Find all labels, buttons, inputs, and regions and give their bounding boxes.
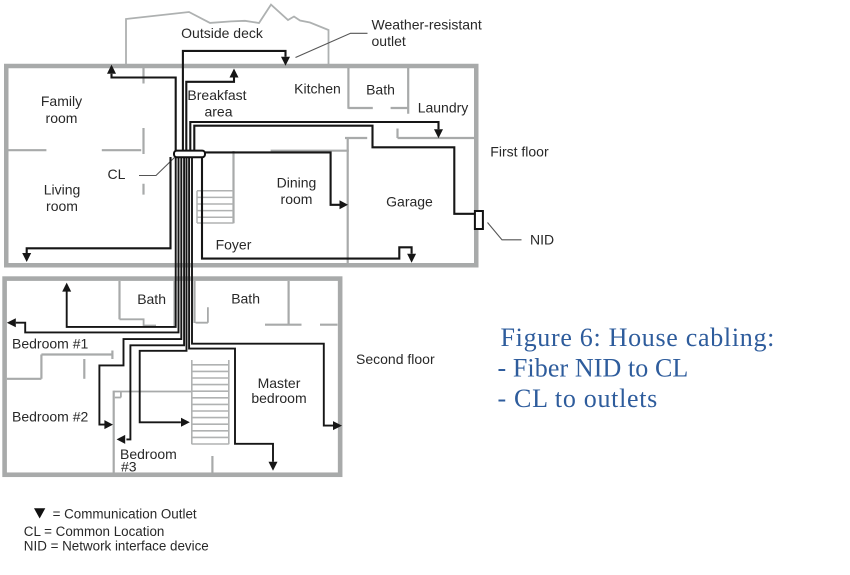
svg-text:CL: CL: [108, 166, 126, 182]
svg-text:room: room: [46, 110, 78, 126]
svg-text:Weather-resistant: Weather-resistant: [372, 17, 482, 33]
svg-text:Family: Family: [41, 93, 82, 109]
svg-text:Garage: Garage: [386, 194, 433, 210]
svg-text:Bath: Bath: [366, 82, 395, 98]
svg-text:NID = Network interface device: NID = Network interface device: [24, 539, 209, 554]
svg-text:NID: NID: [530, 231, 554, 247]
svg-text:Bedroom #2: Bedroom #2: [12, 409, 88, 425]
svg-text:Living: Living: [44, 182, 81, 198]
svg-text:outlet: outlet: [372, 33, 406, 49]
svg-text:First floor: First floor: [490, 144, 549, 160]
svg-text:Laundry: Laundry: [418, 100, 469, 116]
svg-text:Bedroom #1: Bedroom #1: [12, 336, 88, 352]
svg-text:#3: #3: [121, 459, 137, 475]
svg-text:- CL to outlets: - CL to outlets: [498, 384, 658, 413]
svg-text:room: room: [46, 198, 78, 214]
svg-text:Dining: Dining: [277, 175, 317, 191]
svg-text:Foyer: Foyer: [216, 237, 252, 253]
svg-text:Outside deck: Outside deck: [181, 25, 264, 41]
svg-text:Breakfast: Breakfast: [187, 87, 246, 103]
svg-text:Bath: Bath: [231, 290, 260, 306]
svg-text:room: room: [281, 191, 313, 207]
svg-text:Bath: Bath: [137, 291, 166, 307]
svg-text:Second floor: Second floor: [356, 351, 435, 367]
svg-text:CL = Common Location: CL = Common Location: [24, 524, 165, 539]
svg-text:Figure 6: House cabling:: Figure 6: House cabling:: [501, 323, 776, 352]
svg-text:= Communication Outlet: = Communication Outlet: [53, 506, 197, 521]
svg-text:bedroom: bedroom: [251, 390, 306, 406]
svg-text:- Fiber NID to CL: - Fiber NID to CL: [498, 354, 689, 383]
svg-text:Master: Master: [258, 375, 301, 391]
svg-text:area: area: [204, 104, 232, 120]
svg-text:Kitchen: Kitchen: [294, 81, 341, 97]
